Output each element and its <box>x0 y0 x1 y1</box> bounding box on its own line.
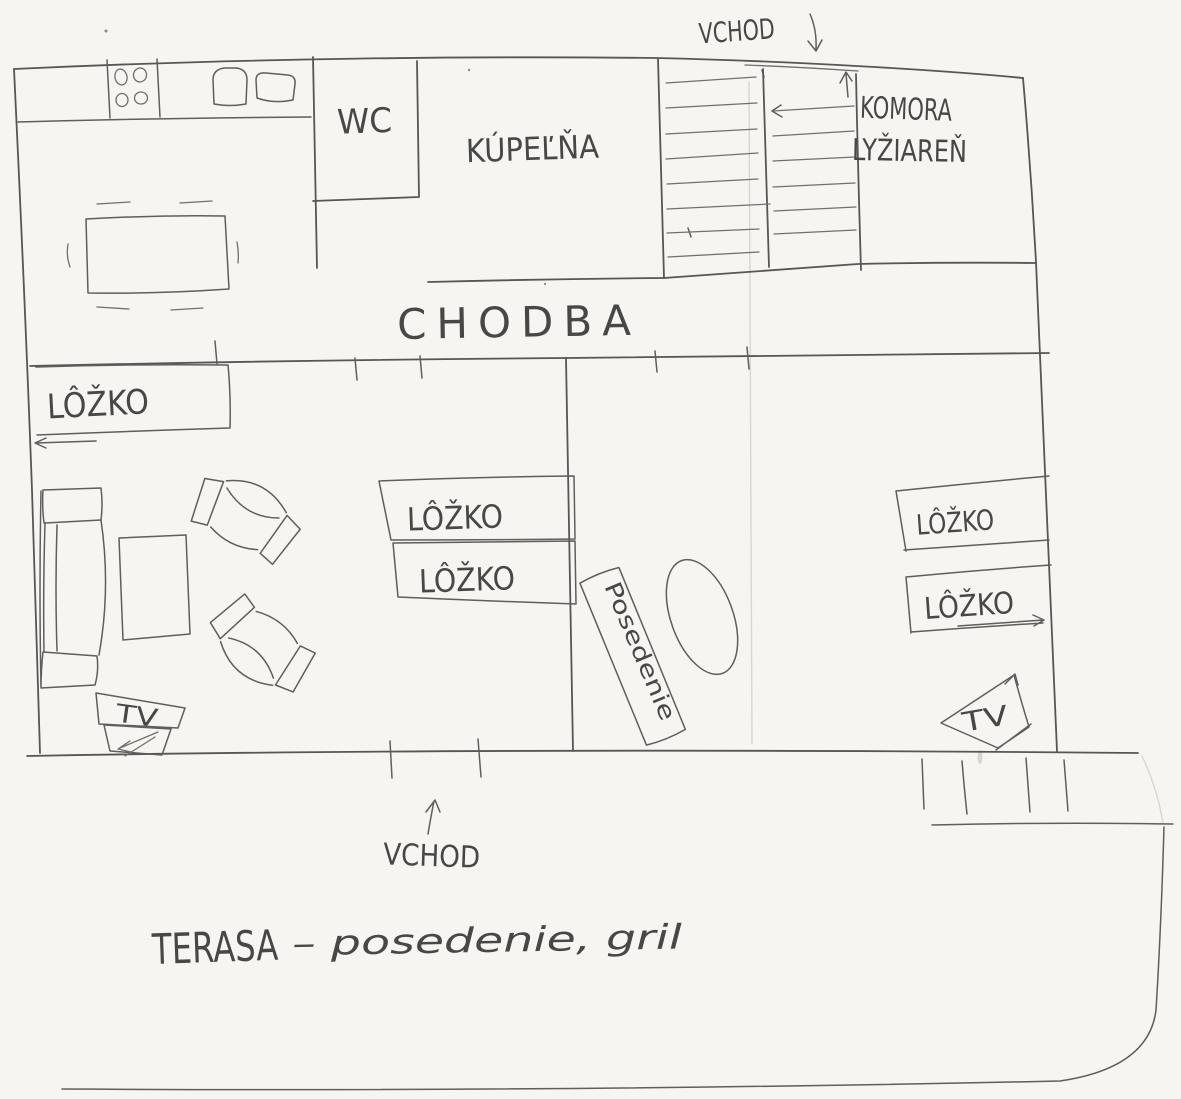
wall-top <box>14 57 1023 78</box>
bed-label: LÔŽKO <box>915 502 995 541</box>
bed-arrow-left-icon <box>35 438 96 448</box>
bathroom: KÚPEĽŇA <box>428 127 664 282</box>
bedroom-middle: LÔŽKO LÔŽKO <box>379 476 576 604</box>
bed-label: LÔŽKO <box>923 584 1015 627</box>
bed-label: LÔŽKO <box>418 558 515 600</box>
crease-corner <box>1142 756 1163 824</box>
wall-room-divider <box>566 358 573 751</box>
wc-label: WC <box>336 101 392 143</box>
coffee-table <box>119 535 190 640</box>
pantry-ski-room: KOMORA LYŽIAREŇ <box>852 91 968 170</box>
stove-burner <box>135 92 148 104</box>
wall-right <box>1023 78 1057 751</box>
terrace: TERASA – posedenie, gril <box>62 758 1173 1090</box>
dining-table <box>86 216 229 293</box>
stairs-arrow-up-icon <box>840 72 852 97</box>
wall-bottom <box>27 751 1138 756</box>
terrace-title: TERASA <box>151 921 280 974</box>
tv-left-label: TV <box>113 698 160 733</box>
kitchen-counter <box>18 59 311 122</box>
entrance-top-label: VCHOD <box>698 12 776 50</box>
wall-left <box>14 69 40 753</box>
armchair-outline <box>184 462 309 569</box>
entrance-bottom: VCHOD <box>383 800 481 876</box>
entry-stairs <box>658 59 1036 278</box>
wc-walls <box>313 57 419 268</box>
kitchen-sink <box>213 68 295 106</box>
entrance-top-arrow-down-icon <box>808 14 822 51</box>
floor-plan-sketch: WC KÚPEĽŇA KOMORA LYŽIAREŇ VCHOD CHODBA … <box>0 0 1181 1099</box>
bed-label: LÔŽKO <box>406 496 503 538</box>
bathroom-wall <box>428 278 664 282</box>
tv-stand-right: TV <box>941 674 1031 750</box>
armchair <box>184 462 309 569</box>
seating-area: Posedenie <box>579 550 751 747</box>
pencil-dot <box>468 69 470 71</box>
stove-burner <box>133 67 148 83</box>
bed-label: LÔŽKO <box>46 381 150 427</box>
entrance-bottom-label: VCHOD <box>383 837 481 875</box>
sketch-paper: WC KÚPEĽŇA KOMORA LYŽIAREŇ VCHOD CHODBA … <box>0 0 1181 1099</box>
stairs-bottom-wall <box>664 263 1036 278</box>
hallway: CHODBA <box>397 296 642 349</box>
bedroom-left: LÔŽKO <box>35 365 230 448</box>
terrace-steps <box>922 758 1068 814</box>
stairs-steps-left <box>666 77 770 257</box>
stove-burner <box>116 94 128 107</box>
seating-label: Posedenie <box>598 578 680 724</box>
armchair-outline <box>198 588 322 706</box>
stairs-steps-right <box>773 106 856 234</box>
pencil-dot <box>105 30 108 33</box>
armchair <box>198 588 322 706</box>
stairs-walls <box>658 59 861 278</box>
tv-stand-left: TV <box>96 693 185 756</box>
kitchen <box>18 59 311 310</box>
entrance-bottom-arrow-up-icon <box>426 800 440 834</box>
bedroom-right: LÔŽKO LÔŽKO TV <box>896 476 1051 750</box>
crease-vertical <box>749 82 752 744</box>
terrace-note: – posedenie, gril <box>292 917 683 964</box>
living-area: TV <box>40 462 322 756</box>
bathroom-label: KÚPEĽŇA <box>465 127 599 171</box>
entrance-top: VCHOD <box>698 12 822 51</box>
pantry-label-line2: LYŽIAREŇ <box>852 132 968 170</box>
hallway-label: CHODBA <box>397 296 642 349</box>
sofa <box>40 488 106 688</box>
bottom-door-ticks <box>390 739 481 778</box>
terrace-step-edge <box>932 823 1173 825</box>
pantry-label-line1: KOMORA <box>859 91 952 129</box>
pencil-dot <box>544 283 546 285</box>
seating-table-oval <box>652 550 751 684</box>
stove-burner <box>113 68 128 86</box>
wc-room: WC <box>313 57 419 268</box>
